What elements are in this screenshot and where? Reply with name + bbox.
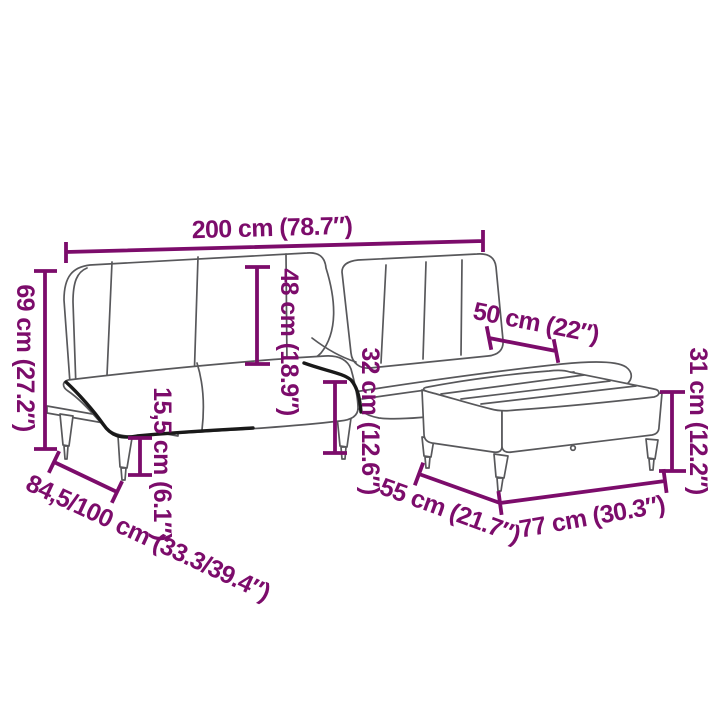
dim-seat-height-label: 32 cm (12.6″)	[356, 347, 384, 495]
dim-sofa-height-label: 69 cm (27.2″)	[11, 284, 39, 432]
product-dimension-diagram: 200 cm (78.7″) 69 cm (27.2″) 48 cm (18.9…	[0, 0, 720, 720]
dim-ottoman-height-label: 31 cm (12.2″)	[684, 347, 712, 495]
dim-ottoman-width: 77 cm (30.3″)	[498, 469, 667, 543]
ottoman-glide-dot	[571, 446, 576, 451]
dim-leg-height-label: 15,5 cm (6.1″)	[148, 387, 176, 541]
dim-sofa-width-label: 200 cm (78.7″)	[191, 212, 353, 244]
diagram-canvas: 200 cm (78.7″) 69 cm (27.2″) 48 cm (18.9…	[0, 0, 720, 720]
dim-ottoman-height: 31 cm (12.2″)	[659, 347, 712, 495]
dim-backrest-height-label: 48 cm (18.9″)	[275, 268, 303, 416]
dim-ottoman-height-line	[659, 392, 686, 471]
ottoman	[422, 370, 662, 491]
dim-sofa-height: 69 cm (27.2″)	[11, 271, 57, 449]
